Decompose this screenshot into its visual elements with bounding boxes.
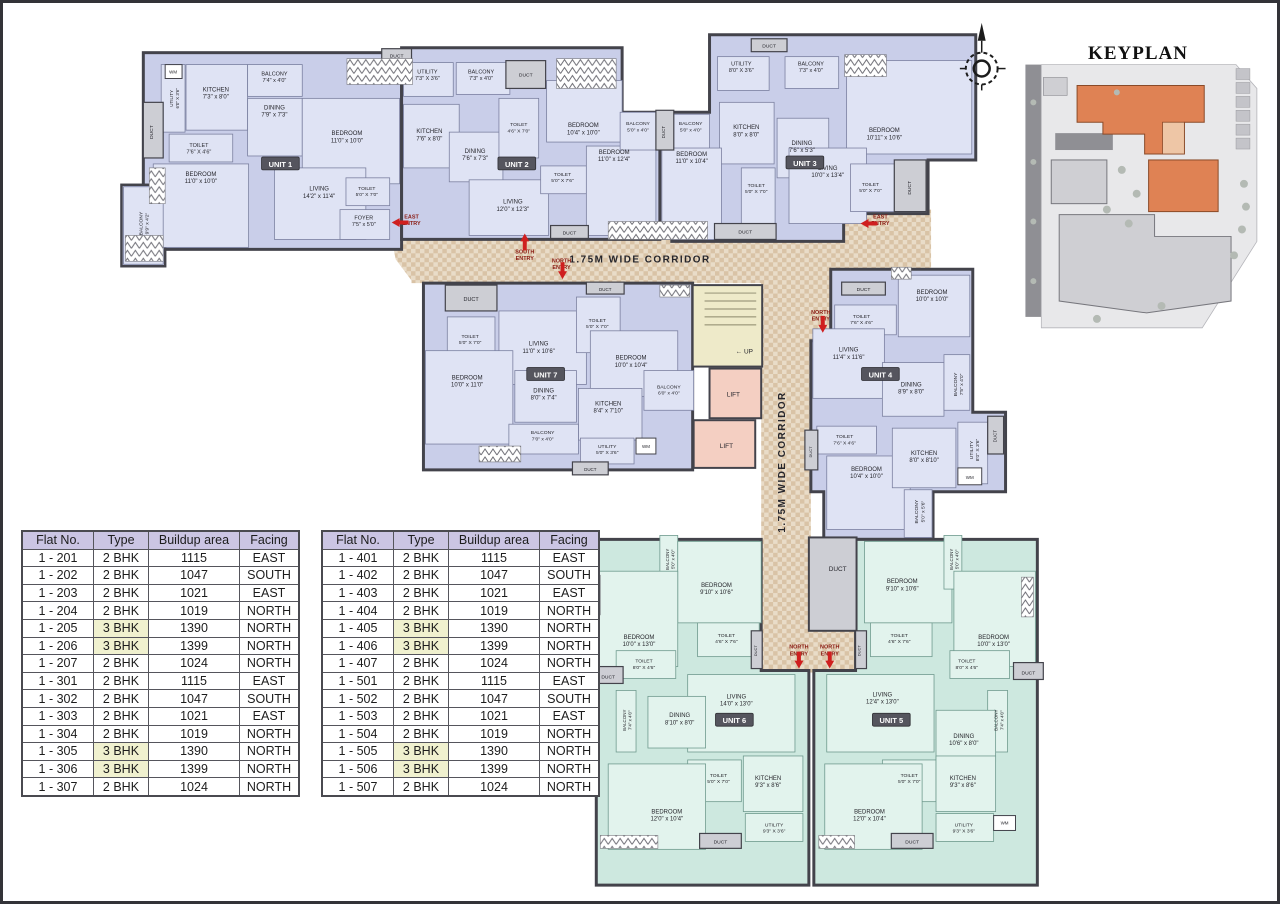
room-label: BEDROOM9'10" x 10'6"	[700, 583, 733, 596]
keyplan-tree	[1030, 159, 1036, 165]
keyplan-court	[1055, 133, 1113, 150]
table-row: 1 - 5072 BHK1024NORTH	[322, 778, 599, 796]
table-row: 1 - 4032 BHK1021EAST	[322, 584, 599, 602]
table-cell: 1019	[149, 725, 240, 743]
central-duct-shaft	[809, 537, 857, 630]
table-row: 1 - 2022 BHK1047SOUTH	[22, 567, 299, 585]
keyplan-tree	[1030, 219, 1036, 225]
table-cell: 1 - 301	[22, 672, 94, 690]
keyplan-highlighted-block	[1149, 160, 1219, 212]
duct-label: DUCT	[738, 229, 752, 235]
table-cell: 3 BHK	[94, 743, 149, 761]
room-label: BALCONY7'4" x 4'0"	[622, 710, 633, 731]
keyplan-tree	[1030, 99, 1036, 105]
table-cell: 1115	[149, 672, 240, 690]
room-label: BALCONY5'0" x 4'0"	[665, 549, 676, 570]
table-cell: 1 - 406	[322, 637, 394, 655]
table-cell: 2 BHK	[394, 672, 449, 690]
room-label: BALCONY5'0" x 4'0"	[949, 549, 960, 570]
keyplan-building	[1051, 160, 1107, 204]
table-cell: 1019	[449, 725, 540, 743]
duct-label: DUCT	[714, 839, 728, 845]
table-cell: SOUTH	[240, 690, 300, 708]
room-label: DINING7'6" x 5'3"	[789, 141, 815, 154]
duct-label: DUCT	[829, 566, 847, 573]
table-row: 1 - 2072 BHK1024NORTH	[22, 655, 299, 673]
table-cell: 3 BHK	[94, 619, 149, 637]
table-row: 1 - 3053 BHK1390NORTH	[22, 743, 299, 761]
corridor-label: 1.75M WIDE CORRIDOR	[777, 391, 788, 532]
table-cell: 2 BHK	[394, 602, 449, 620]
table-cell: 1399	[149, 637, 240, 655]
room-label: DINING10'6" x 8'0"	[949, 734, 978, 747]
room-label: UTILITY8'0" X 3'6"	[729, 62, 754, 75]
table-cell: EAST	[540, 549, 600, 567]
duct-label: DUCT	[661, 126, 666, 139]
column-header: Flat No.	[22, 531, 94, 549]
table-cell: 2 BHK	[94, 655, 149, 673]
table-cell: 1390	[449, 619, 540, 637]
table-cell: NORTH	[240, 602, 300, 620]
column-header: Type	[394, 531, 449, 549]
duct-label: DUCT	[149, 125, 155, 139]
room-label: KITCHEN9'3" x 8'6"	[755, 776, 781, 789]
table-cell: 1047	[449, 690, 540, 708]
table-row: 1 - 4022 BHK1047SOUTH	[322, 567, 599, 585]
table-cell: 2 BHK	[394, 690, 449, 708]
table-cell: 1399	[449, 637, 540, 655]
duct-label: DUCT	[808, 446, 813, 458]
table-cell: 1021	[149, 584, 240, 602]
table-cell: 2 BHK	[94, 549, 149, 567]
table-cell: 1 - 505	[322, 743, 394, 761]
table-cell: EAST	[540, 707, 600, 725]
duct-label: DUCT	[857, 287, 871, 293]
table-row: 1 - 2053 BHK1390NORTH	[22, 619, 299, 637]
table-cell: 3 BHK	[94, 637, 149, 655]
table-cell: 1 - 504	[322, 725, 394, 743]
table-cell: 1 - 401	[322, 549, 394, 567]
table-cell: 2 BHK	[394, 655, 449, 673]
corridor-south-lobby	[761, 629, 856, 673]
room-label: BALCONY7'4" x 4'0"	[261, 72, 287, 85]
keyplan-building	[1043, 78, 1067, 96]
table-cell: 1 - 204	[22, 602, 94, 620]
table-row: 1 - 5022 BHK1047SOUTH	[322, 690, 599, 708]
keyplan-parking	[1236, 124, 1250, 135]
room-label: DINING7'6" x 7'3"	[462, 149, 488, 162]
room-label: BEDROOM11'0" x 10'0"	[185, 172, 217, 185]
room-label: BEDROOM12'0" x 10'4"	[853, 810, 886, 823]
duct-label: DUCT	[563, 230, 577, 236]
balcony-glazing	[891, 267, 911, 279]
room-label: WM	[966, 475, 974, 480]
table-cell: 3 BHK	[394, 619, 449, 637]
column-header: Buildup area	[149, 531, 240, 549]
room-label: BEDROOM10'0" x 13'0"	[623, 635, 656, 648]
table-cell: 1 - 304	[22, 725, 94, 743]
table-cell: NORTH	[240, 743, 300, 761]
table-cell: EAST	[240, 584, 300, 602]
room-label: KITCHEN9'3" x 8'6"	[950, 776, 976, 789]
keyplan-tree	[1103, 206, 1111, 214]
table-row: 1 - 2012 BHK1115EAST	[22, 549, 299, 567]
room-label: DINING8'0" x 7'4"	[531, 388, 557, 401]
table-row: 1 - 2042 BHK1019NORTH	[22, 602, 299, 620]
table-cell: NORTH	[240, 655, 300, 673]
stair-up-label: ← UP	[736, 349, 753, 356]
table-cell: 1 - 506	[322, 760, 394, 778]
duct-label: DUCT	[753, 645, 758, 657]
table-cell: 1 - 407	[322, 655, 394, 673]
room-label: BEDROOM10'0" x 13'0"	[977, 635, 1010, 648]
balcony-glazing	[845, 55, 887, 77]
table-cell: 1021	[149, 707, 240, 725]
duct-label: DUCT	[519, 73, 533, 79]
room-label: WM	[169, 70, 177, 75]
table-cell: 1 - 403	[322, 584, 394, 602]
table-cell: 1390	[449, 743, 540, 761]
room-label: BEDROOM10'0" x 10'4"	[615, 356, 648, 369]
table-cell: 1115	[449, 672, 540, 690]
table-cell: 1 - 405	[322, 619, 394, 637]
balcony-glazing	[125, 235, 163, 261]
balcony-glazing	[819, 835, 855, 848]
table-cell: 1 - 306	[22, 760, 94, 778]
table-cell: NORTH	[540, 760, 600, 778]
table-cell: SOUTH	[240, 567, 300, 585]
table-row: 1 - 5012 BHK1115EAST	[322, 672, 599, 690]
duct-label: DUCT	[762, 44, 776, 50]
flat-table: Flat No.TypeBuildup areaFacing1 - 2012 B…	[21, 530, 300, 797]
keyplan-parking	[1236, 82, 1250, 93]
unit-badge-label: UNIT 6	[723, 716, 747, 725]
unit-badge-label: UNIT 7	[534, 370, 558, 379]
keyplan-tree	[1133, 190, 1141, 198]
keyplan-tree	[1230, 251, 1238, 259]
table-cell: 1399	[149, 760, 240, 778]
keyplan-tree	[1030, 278, 1036, 284]
table-cell: 1024	[149, 778, 240, 796]
room-label: WM	[1001, 821, 1009, 826]
table-cell: NORTH	[540, 637, 600, 655]
table-row: 1 - 4042 BHK1019NORTH	[322, 602, 599, 620]
floor-plan-sheet: 1.75M WIDE CORRIDOR1.75M WIDE CORRIDORUT…	[0, 0, 1280, 904]
table-cell: 1 - 302	[22, 690, 94, 708]
table-cell: 2 BHK	[94, 725, 149, 743]
room-label: KITCHEN7'6" x 8'0"	[416, 129, 442, 142]
lift-label: LIFT	[727, 391, 740, 398]
table-row: 1 - 4012 BHK1115EAST	[322, 549, 599, 567]
table-cell: 1024	[449, 655, 540, 673]
table-row: 1 - 4063 BHK1399NORTH	[322, 637, 599, 655]
table-cell: 2 BHK	[394, 549, 449, 567]
table-row: 1 - 5063 BHK1399NORTH	[322, 760, 599, 778]
duct-label: DUCT	[464, 297, 480, 303]
table-cell: SOUTH	[540, 567, 600, 585]
table-cell: EAST	[240, 672, 300, 690]
room-label: BALCONY7'3" x 4'0"	[468, 70, 494, 83]
table-cell: NORTH	[240, 778, 300, 796]
table-cell: 2 BHK	[94, 602, 149, 620]
unit-badge-label: UNIT 3	[793, 159, 817, 168]
duct-label: DUCT	[907, 181, 913, 195]
table-cell: 1021	[449, 707, 540, 725]
keyplan-parking	[1236, 138, 1250, 149]
table-cell: 1 - 503	[322, 707, 394, 725]
room-label: FOYER7'5" x 5'0"	[352, 216, 376, 229]
room-label: KITCHEN7'3" x 8'0"	[203, 87, 229, 100]
table-row: 1 - 5042 BHK1019NORTH	[322, 725, 599, 743]
unit-badge-label: UNIT 5	[880, 716, 904, 725]
table-cell: 1 - 201	[22, 549, 94, 567]
keyplan-tree	[1240, 180, 1248, 188]
table-cell: NORTH	[540, 655, 600, 673]
table-cell: 1021	[449, 584, 540, 602]
duct-label: DUCT	[390, 54, 404, 60]
room-label: BEDROOM10'4" x 10'0"	[850, 467, 883, 480]
unit-badge-label: UNIT 1	[269, 160, 293, 169]
column-header: Flat No.	[322, 531, 394, 549]
room	[425, 351, 512, 444]
table-cell: 2 BHK	[94, 778, 149, 796]
table-cell: 1047	[149, 690, 240, 708]
table-cell: 1 - 501	[322, 672, 394, 690]
entry-label: SOUTHENTRY	[515, 249, 534, 262]
table-cell: 1390	[149, 743, 240, 761]
corridor-label: 1.75M WIDE CORRIDOR	[569, 254, 710, 265]
room-label: BEDROOM10'0" x 10'0"	[916, 290, 949, 303]
duct-label: DUCT	[584, 467, 597, 472]
table-row: 1 - 5032 BHK1021EAST	[322, 707, 599, 725]
table-cell: 1047	[149, 567, 240, 585]
table-cell: 1 - 305	[22, 743, 94, 761]
table-cell: 2 BHK	[94, 672, 149, 690]
table-cell: 1390	[149, 619, 240, 637]
unit-badge-label: UNIT 4	[869, 370, 893, 379]
keyplan-tree	[1238, 226, 1246, 234]
table-cell: EAST	[240, 707, 300, 725]
keyplan-tree	[1093, 315, 1101, 323]
table-cell: 3 BHK	[94, 760, 149, 778]
table-cell: 3 BHK	[394, 760, 449, 778]
keyplan-tree	[1242, 203, 1250, 211]
balcony-glazing	[1021, 577, 1033, 617]
table-cell: EAST	[240, 549, 300, 567]
flat-table-floors-4-5: Flat No.TypeBuildup areaFacing1 - 4012 B…	[321, 530, 600, 797]
keyplan-title: KEYPLAN	[1053, 43, 1223, 65]
table-row: 1 - 3063 BHK1399NORTH	[22, 760, 299, 778]
room	[813, 329, 885, 399]
table-cell: 2 BHK	[94, 584, 149, 602]
keyplan-tree	[1114, 89, 1120, 95]
column-header: Type	[94, 531, 149, 549]
table-cell: SOUTH	[540, 690, 600, 708]
duct-label: DUCT	[857, 645, 862, 657]
keyplan-tree	[1158, 302, 1166, 310]
table-cell: 3 BHK	[394, 637, 449, 655]
duct-label: DUCT	[1022, 671, 1036, 677]
table-cell: NORTH	[540, 778, 600, 796]
room-label: BEDROOM10'4" x 10'0"	[567, 123, 600, 136]
unit-badge-label: UNIT 2	[505, 160, 529, 169]
keyplan-parking	[1236, 110, 1250, 121]
table-cell: 1 - 404	[322, 602, 394, 620]
table-cell: 2 BHK	[94, 690, 149, 708]
room-label: DINING8'9" x 8'0"	[898, 382, 924, 395]
table-row: 1 - 4072 BHK1024NORTH	[322, 655, 599, 673]
table-row: 1 - 5053 BHK1390NORTH	[322, 743, 599, 761]
room-label: KITCHEN8'0" x 8'0"	[733, 125, 759, 138]
room-label: BEDROOM11'0" x 10'0"	[331, 131, 363, 144]
room-label: DINING7'9" x 7'3"	[261, 105, 287, 118]
table-cell: 1 - 502	[322, 690, 394, 708]
column-header: Facing	[540, 531, 600, 549]
room-label: KITCHEN8'4" x 7'10"	[594, 401, 623, 414]
room-label: DINING8'10" x 8'0"	[665, 713, 694, 726]
table-cell: 1019	[449, 602, 540, 620]
room-label: BEDROOM11'0" x 10'4"	[676, 152, 708, 165]
table-cell: 2 BHK	[394, 778, 449, 796]
room-label: BEDROOM11'0" x 12'4"	[598, 150, 630, 163]
table-row: 1 - 2063 BHK1399NORTH	[22, 637, 299, 655]
table-cell: 1115	[449, 549, 540, 567]
room-label: WM	[642, 444, 650, 449]
room-label: UTILITY6'0" X 3'6"	[169, 88, 180, 109]
room-label: BALCONY7'3" x 4'0"	[798, 62, 824, 75]
table-cell: 2 BHK	[94, 567, 149, 585]
table-cell: NORTH	[540, 602, 600, 620]
table-cell: EAST	[540, 584, 600, 602]
balcony-glazing	[479, 446, 521, 462]
column-header: Buildup area	[449, 531, 540, 549]
keyplan-highlighted-block	[1163, 122, 1185, 154]
balcony-glazing	[660, 285, 690, 297]
duct-label: DUCT	[599, 287, 612, 292]
table-cell: 2 BHK	[394, 725, 449, 743]
duct-label: DUCT	[905, 839, 919, 845]
table-cell: NORTH	[540, 725, 600, 743]
table-row: 1 - 3022 BHK1047SOUTH	[22, 690, 299, 708]
flat-table: Flat No.TypeBuildup areaFacing1 - 4012 B…	[321, 530, 600, 797]
table-cell: 1 - 207	[22, 655, 94, 673]
table-cell: EAST	[540, 672, 600, 690]
table-cell: 1115	[149, 549, 240, 567]
table-cell: NORTH	[240, 760, 300, 778]
room-label: UTILITY7'3" X 3'6"	[415, 70, 440, 83]
keyplan-parking	[1236, 96, 1250, 107]
keyplan-tree	[1118, 166, 1126, 174]
table-cell: 1 - 205	[22, 619, 94, 637]
table-cell: 2 BHK	[394, 707, 449, 725]
room-label: BEDROOM12'0" x 10'4"	[650, 810, 683, 823]
room-label: KITCHEN8'0" x 8'10"	[909, 451, 938, 464]
table-cell: NORTH	[240, 637, 300, 655]
table-cell: 1024	[149, 655, 240, 673]
table-cell: NORTH	[240, 619, 300, 637]
table-cell: 1 - 303	[22, 707, 94, 725]
column-header: Facing	[240, 531, 300, 549]
room-label: BEDROOM10'0" x 11'0"	[451, 375, 483, 388]
table-row: 1 - 3042 BHK1019NORTH	[22, 725, 299, 743]
table-cell: 1 - 206	[22, 637, 94, 655]
lift-label: LIFT	[720, 443, 733, 450]
table-cell: 1399	[449, 760, 540, 778]
table-cell: 2 BHK	[394, 584, 449, 602]
table-cell: 1 - 402	[322, 567, 394, 585]
room-label: BEDROOM9'10" x 10'6"	[886, 579, 919, 592]
table-cell: 1 - 202	[22, 567, 94, 585]
room	[741, 168, 775, 224]
room-label: BEDROOM10'11" x 10'6"	[867, 128, 903, 141]
flat-table-floors-2-3: Flat No.TypeBuildup areaFacing1 - 2012 B…	[21, 530, 300, 797]
balcony-glazing	[600, 835, 658, 848]
keyplan-tree	[1125, 220, 1133, 228]
table-row: 1 - 3012 BHK1115EAST	[22, 672, 299, 690]
table-cell: 1047	[449, 567, 540, 585]
balcony-glazing	[347, 59, 413, 85]
room-label: BALCONY7'4" x 4'0"	[994, 710, 1005, 731]
duct-label: DUCT	[601, 674, 615, 680]
balcony-glazing	[149, 168, 165, 204]
compass-needle	[978, 23, 986, 41]
table-cell: NORTH	[240, 725, 300, 743]
room	[898, 275, 970, 337]
balcony-glazing	[608, 222, 707, 240]
table-cell: 1 - 307	[22, 778, 94, 796]
table-row: 1 - 2032 BHK1021EAST	[22, 584, 299, 602]
table-row: 1 - 3072 BHK1024NORTH	[22, 778, 299, 796]
keyplan-parking	[1236, 69, 1250, 80]
table-cell: 1024	[449, 778, 540, 796]
table-cell: 1 - 203	[22, 584, 94, 602]
table-cell: NORTH	[540, 743, 600, 761]
table-cell: 1019	[149, 602, 240, 620]
table-cell: 2 BHK	[94, 707, 149, 725]
table-cell: 3 BHK	[394, 743, 449, 761]
balcony-glazing	[557, 59, 617, 89]
duct-label: DUCT	[993, 430, 998, 443]
table-cell: 2 BHK	[394, 567, 449, 585]
table-row: 1 - 3032 BHK1021EAST	[22, 707, 299, 725]
table-row: 1 - 4053 BHK1390NORTH	[322, 619, 599, 637]
table-cell: 1 - 507	[322, 778, 394, 796]
room-label: TOILET7'6" X 4'6"	[187, 143, 212, 156]
table-cell: NORTH	[540, 619, 600, 637]
